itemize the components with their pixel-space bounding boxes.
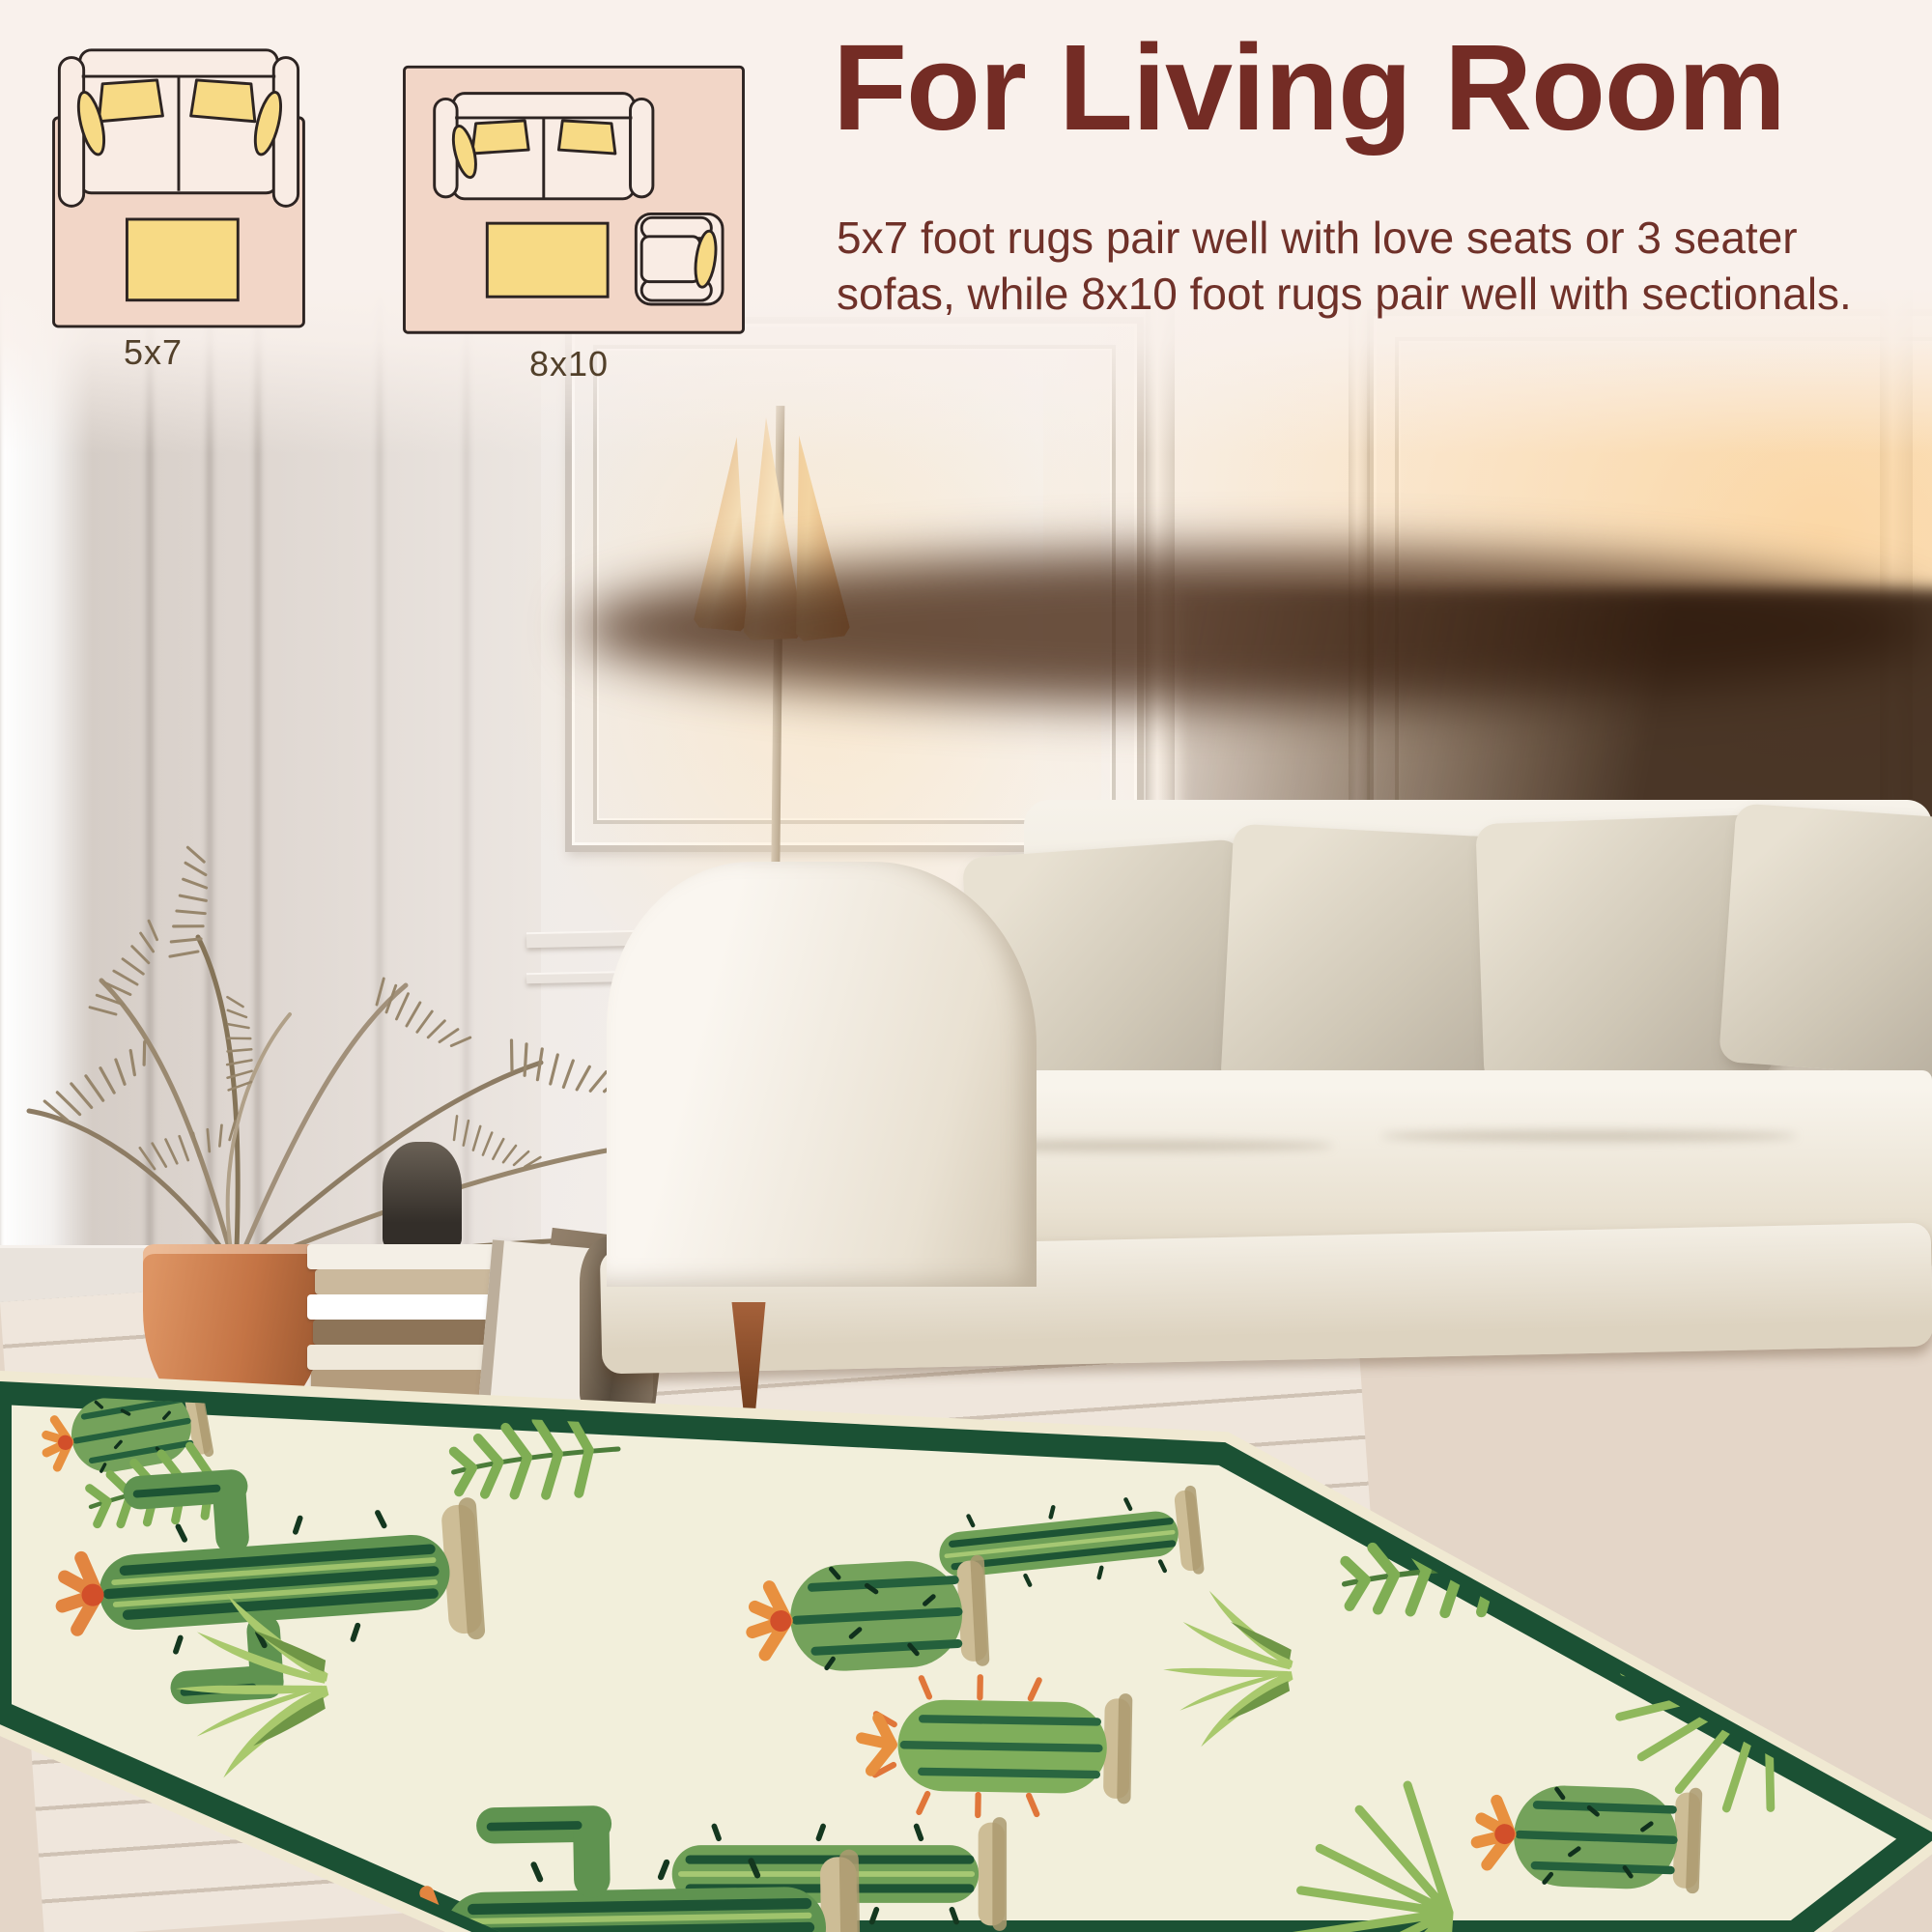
rug-size-label: 8x10	[529, 344, 609, 384]
book	[307, 1294, 500, 1320]
rug-5x7-diagram-icon	[37, 33, 319, 334]
throw-pillow	[1220, 823, 1519, 1103]
book	[307, 1244, 497, 1269]
rug-8x10-diagram-icon	[394, 41, 753, 342]
book	[311, 1370, 498, 1395]
sofa-armrest	[607, 862, 1037, 1287]
cushion-crease	[1381, 1130, 1797, 1142]
book	[315, 1269, 495, 1294]
page-description: 5x7 foot rugs pair well with love seats …	[837, 211, 1923, 323]
page-title: For Living Room	[833, 21, 1924, 156]
terracotta-pot	[143, 1244, 325, 1416]
living-room-photo	[0, 270, 1932, 1932]
throw-pillow	[1719, 803, 1932, 1078]
header: 5x7 8x10 For Living Room 5x7 foot rugs p…	[0, 0, 1932, 386]
book	[313, 1320, 495, 1345]
book	[307, 1345, 504, 1370]
statue-figurine	[383, 1142, 462, 1250]
rug-size-label: 5x7	[124, 332, 183, 373]
